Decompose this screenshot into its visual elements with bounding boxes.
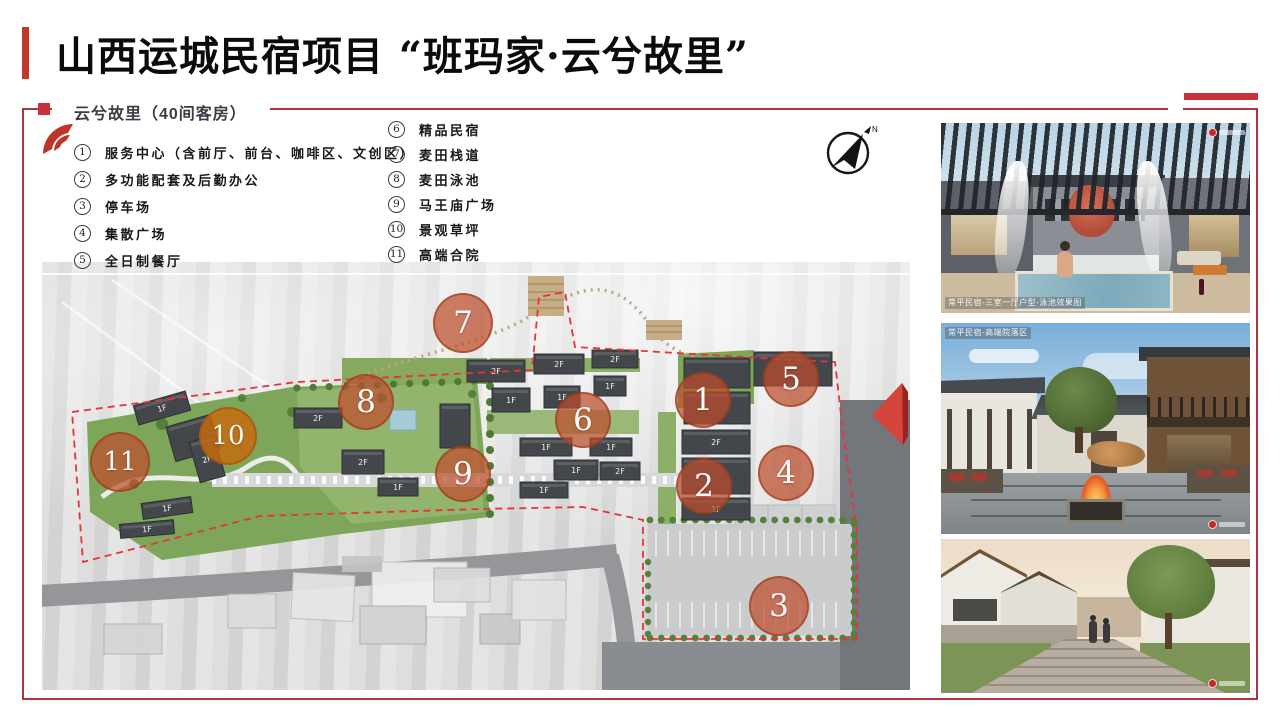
legend-number-icon: 9: [388, 196, 405, 213]
floor-label: 1F: [571, 466, 581, 475]
red-cushion: [949, 473, 965, 481]
floor-label: 2F: [615, 467, 625, 476]
left-colonnade: [947, 409, 1033, 469]
map-marker-3: 3: [749, 576, 809, 636]
north-compass-icon: N: [818, 122, 880, 182]
legend-label: 高端合院: [419, 245, 481, 264]
legend-label: 全日制餐厅: [105, 251, 183, 270]
logo-mark-icon: [1208, 679, 1217, 688]
map-marker-4: 4: [758, 445, 814, 501]
legend-number-icon: 4: [74, 225, 91, 242]
left-window: [953, 599, 997, 621]
legend-column-left: 1服务中心（含前厅、前台、咖啡区、文创区）2多功能配套及后勤办公3停车场4集散广…: [74, 143, 415, 269]
legend-item-4: 4集散广场: [74, 224, 415, 242]
clouds: [969, 349, 1039, 363]
person-head: [1060, 241, 1070, 251]
building: 2F: [342, 450, 384, 474]
legend-number-icon: 7: [388, 146, 405, 163]
floor-label: 2F: [711, 438, 721, 447]
developer-logo: [1208, 520, 1245, 529]
logo-text-placeholder: [1219, 681, 1245, 686]
legend-label: 马王庙广场: [419, 195, 497, 214]
building: 1F: [378, 478, 418, 496]
developer-logo: [1208, 679, 1245, 688]
section-subtitle: 云兮故里（40间客房）: [68, 100, 253, 124]
legend-item-2: 2多功能配套及后勤办公: [74, 170, 415, 188]
title-accent-bar: [22, 27, 29, 79]
legend-item-9: 9马王庙广场: [388, 195, 497, 213]
pergola-beam: [941, 209, 1250, 215]
red-cushion: [1221, 469, 1237, 477]
pergola-louvers: [941, 123, 1250, 215]
legend-label: 精品民宿: [419, 120, 481, 139]
pedestrian-head: [1103, 618, 1109, 624]
floor-label: 1F: [142, 525, 153, 535]
building: 2F: [534, 354, 584, 374]
map-marker-1: 1: [675, 372, 731, 428]
lounge-chair: [1177, 251, 1221, 265]
floor-label: 2F: [358, 458, 368, 467]
red-swoosh-decoration: [40, 121, 82, 157]
building: 2F: [682, 430, 750, 454]
floor-label: 1F: [605, 382, 615, 391]
render-photo-village-lane: [941, 539, 1250, 693]
person-in-pool: [1057, 251, 1073, 277]
legend-number-icon: 2: [74, 171, 91, 188]
balcony-railing: [1147, 397, 1250, 417]
tree-trunk: [1165, 613, 1172, 649]
photo-caption: 常平民宿-高端院落区: [945, 327, 1031, 339]
pine-tree: [1045, 367, 1117, 433]
legend-label: 景观草坪: [419, 220, 481, 239]
legend-number-icon: 8: [388, 171, 405, 188]
red-cushion: [1197, 469, 1213, 477]
orange-cushion: [1193, 265, 1227, 275]
wheat-field-pool: [390, 410, 416, 430]
render-photo-firepit-courtyard: 常平民宿-高端院落区: [941, 323, 1250, 534]
legend-number-icon: 5: [74, 252, 91, 269]
fire-pit: [1067, 499, 1125, 523]
legend-item-6: 6精品民宿: [388, 120, 497, 138]
balcony-deck: [1147, 417, 1250, 427]
legend-item-3: 3停车场: [74, 197, 415, 215]
legend-number-icon: 3: [74, 198, 91, 215]
rockery: [1087, 441, 1145, 467]
page-title: 山西运城民宿项目 “班玛家·云兮故里”: [56, 24, 936, 82]
subtitle-bullet-square: [38, 103, 50, 115]
site-plan-map: 1F2F1F1F2F2F1F2F2F2F1F1F1F1F1F1F2F1F2F1F…: [42, 262, 910, 690]
map-marker-7: 7: [433, 293, 493, 353]
legend-item-8: 8麦田泳池: [388, 170, 497, 188]
tree-trunk: [1075, 427, 1083, 453]
floor-label: 2F: [554, 360, 564, 369]
legend-number-icon: 11: [388, 246, 405, 263]
frame-top-gap: [1168, 106, 1183, 112]
logo-text-placeholder: [1219, 522, 1245, 527]
building: 1F: [492, 388, 530, 412]
floor-label: 2F: [610, 355, 620, 364]
legend-number-icon: 6: [388, 121, 405, 138]
photo-caption: 常平民宿-三室一厅户型-泳池效果图: [945, 297, 1085, 309]
street-tree: [1127, 545, 1215, 619]
legend-item-11: 11高端合院: [388, 245, 497, 263]
legend-item-10: 10景观草坪: [388, 220, 497, 238]
floor-label: 1F: [162, 503, 173, 513]
map-marker-5: 5: [763, 351, 819, 407]
building: 2F: [600, 462, 640, 480]
render-photo-pool-courtyard: 常平民宿-三室一厅户型-泳池效果图: [941, 123, 1250, 313]
legend-column-right: 6精品民宿7麦田栈道8麦田泳池9马王庙广场10景观草坪11高端合院: [388, 120, 497, 263]
legend-item-7: 7麦田栈道: [388, 145, 497, 163]
legend-item-5: 5全日制餐厅: [74, 251, 415, 269]
legend-label: 麦田泳池: [419, 170, 481, 189]
pedestrian: [1103, 623, 1110, 643]
top-right-red-bar: [1184, 93, 1258, 100]
wine-bottle: [1199, 279, 1204, 295]
legend-label: 集散广场: [105, 224, 167, 243]
building: 1F: [594, 376, 626, 396]
building: 2F: [294, 408, 342, 428]
logo-text-placeholder: [1219, 130, 1245, 135]
map-marker-8: 8: [338, 374, 394, 430]
legend-label: 多功能配套及后勤办公: [105, 170, 260, 189]
map-marker-11: 11: [90, 432, 150, 492]
map-marker-9: 9: [435, 446, 491, 502]
floor-label: 1F: [506, 396, 516, 405]
legend-item-1: 1服务中心（含前厅、前台、咖啡区、文创区）: [74, 143, 415, 161]
building: 2F: [592, 350, 638, 368]
map-marker-10: 10: [199, 407, 257, 465]
floor-label: 1F: [393, 483, 403, 492]
right-window: [1189, 209, 1239, 257]
developer-logo: [1208, 128, 1245, 137]
pedestrian: [1089, 621, 1097, 643]
map-marker-2: 2: [676, 458, 732, 514]
floor-label: 1F: [541, 443, 551, 452]
legend-label: 停车场: [105, 197, 152, 216]
legend-label: 服务中心（含前厅、前台、咖啡区、文创区）: [105, 143, 415, 162]
red-cushion: [971, 473, 987, 481]
floor-label: 1F: [539, 486, 549, 495]
building: 1F: [520, 482, 568, 498]
logo-mark-icon: [1208, 520, 1217, 529]
floor-label: 1F: [606, 443, 616, 452]
building: [440, 404, 470, 448]
map-marker-6: 6: [555, 392, 611, 448]
north-label: N: [872, 125, 878, 134]
pedestrian-head: [1090, 615, 1096, 621]
floor-label: 2F: [313, 414, 323, 423]
legend-label: 麦田栈道: [419, 145, 481, 164]
logo-mark-icon: [1208, 128, 1217, 137]
legend-number-icon: 10: [388, 221, 405, 238]
building: 1F: [554, 460, 598, 480]
